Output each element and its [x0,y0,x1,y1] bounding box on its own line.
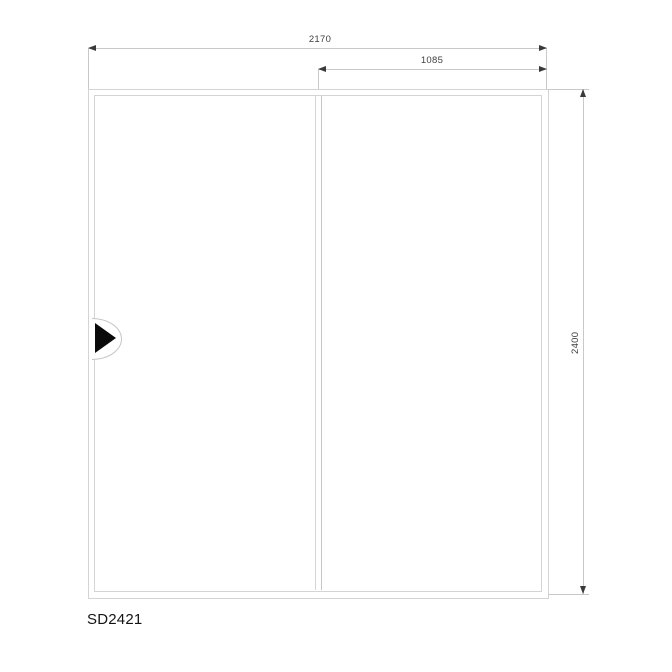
height-dimension-label: 2400 [570,328,581,354]
slide-direction-arrow-icon [95,323,116,353]
panel-width-extension-line [318,69,319,89]
panel-width-dimension-line [318,69,547,70]
width-dim-arrow-left-icon [88,45,96,51]
door-elevation-drawing: 2170 1085 2400 SD2421 [0,0,672,672]
model-label: SD2421 [87,611,142,628]
width-dimension-label: 2170 [295,34,345,45]
width-dim-arrow-right-icon [539,45,547,51]
width-dimension-line [88,48,547,49]
panel-width-dim-arrow-right-icon [539,66,547,72]
height-dim-arrow-top-icon [580,89,586,97]
height-dim-arrow-bottom-icon [580,586,586,594]
meeting-stile-left-line [315,96,316,590]
width-extension-line-left [88,48,89,89]
meeting-stile-right-line [321,96,322,590]
height-dimension-line [583,89,584,594]
door-inner-frame [94,95,542,592]
panel-width-dimension-label: 1085 [407,55,457,66]
height-extension-line-bottom [548,594,589,595]
panel-width-dim-arrow-left-icon [318,66,326,72]
